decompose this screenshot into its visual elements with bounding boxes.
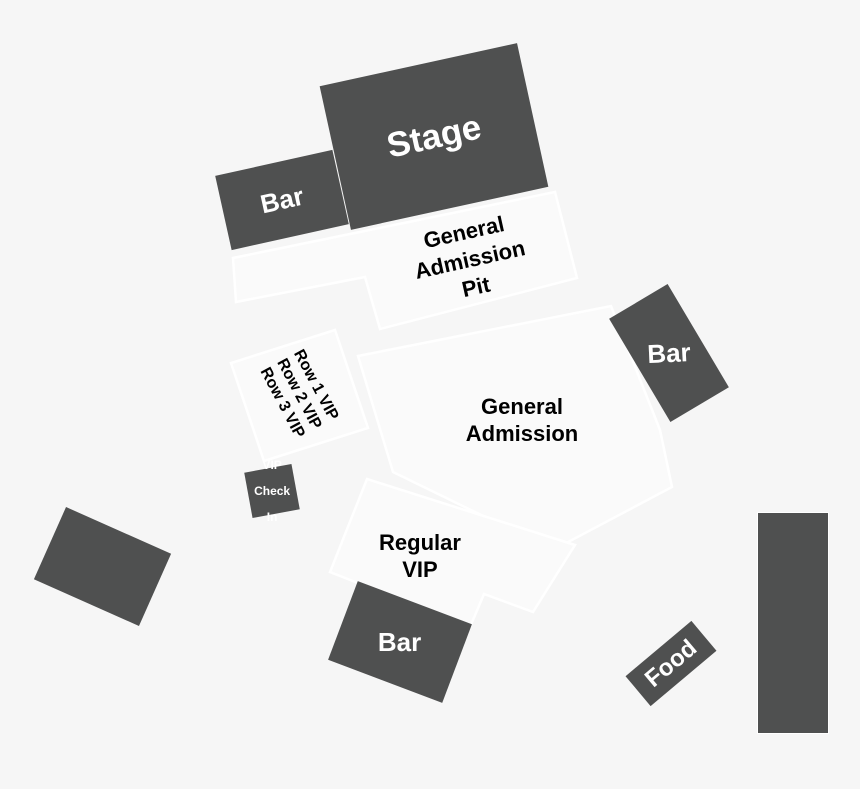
- bar-bottom-label: Bar: [378, 626, 421, 657]
- general-admission-label: General Admission: [466, 393, 578, 447]
- vip-check-in-label: VIP Check In: [254, 459, 290, 524]
- unlabeled-block-right: [757, 512, 829, 734]
- regular-vip-label: Regular VIP: [379, 529, 461, 583]
- bar-upper-left-label: Bar: [257, 180, 306, 220]
- bar-right-label: Bar: [647, 336, 692, 369]
- venue-map: Stage Bar Bar Bar VIP Check In Food Gene…: [0, 0, 860, 789]
- stage-label: Stage: [383, 107, 485, 166]
- vip-check-in-block[interactable]: VIP Check In: [244, 464, 300, 518]
